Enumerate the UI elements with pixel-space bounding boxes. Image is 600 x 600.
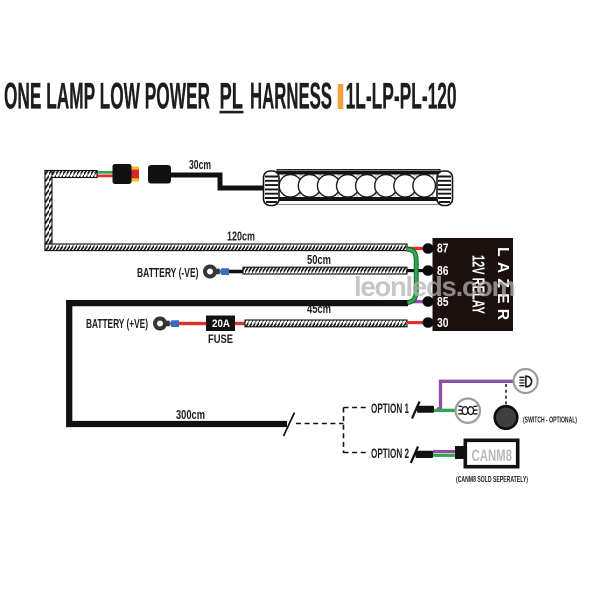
svg-text:87: 87 — [437, 241, 449, 256]
svg-text:PL: PL — [220, 74, 244, 116]
svg-text:OPTION 2: OPTION 2 — [371, 445, 409, 461]
svg-text:120cm: 120cm — [227, 229, 255, 244]
svg-text:(SWITCH - OPTIONAL): (SWITCH - OPTIONAL) — [523, 415, 577, 425]
svg-text:BATTERY (-VE): BATTERY (-VE) — [137, 265, 199, 280]
svg-text:20A: 20A — [212, 318, 230, 330]
svg-text:30cm: 30cm — [189, 157, 211, 172]
svg-text:FUSE: FUSE — [208, 334, 233, 346]
svg-text:BATTERY (+VE): BATTERY (+VE) — [86, 316, 148, 331]
svg-text:50cm: 50cm — [307, 252, 331, 267]
svg-text:leonleds.com: leonleds.com — [354, 271, 516, 302]
svg-text:300cm: 300cm — [176, 407, 205, 422]
svg-text:1L-LP-PL-120: 1L-LP-PL-120 — [346, 74, 457, 116]
svg-text:OPTION 1: OPTION 1 — [371, 400, 409, 416]
svg-text:30: 30 — [437, 315, 449, 330]
svg-text:ONE LAMP LOW POWER: ONE LAMP LOW POWER — [4, 74, 210, 116]
svg-text:HARNESS: HARNESS — [250, 74, 332, 116]
svg-text:CANM8: CANM8 — [472, 446, 513, 465]
svg-text:(CANM8 SOLD SEPERATELY): (CANM8 SOLD SEPERATELY) — [456, 474, 528, 484]
